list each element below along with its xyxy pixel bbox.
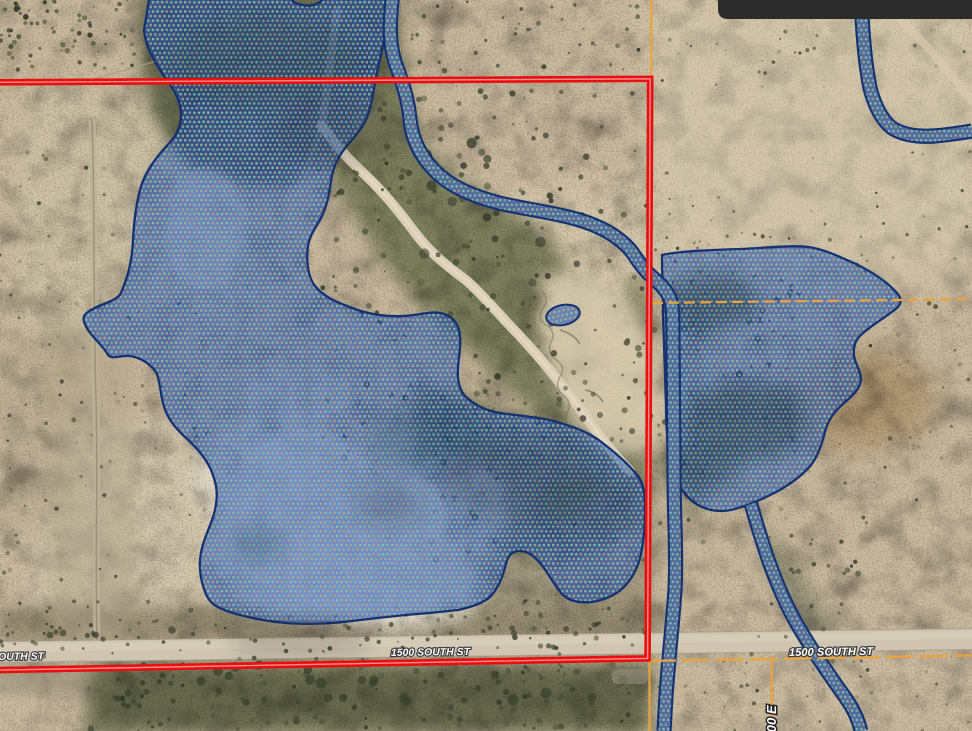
svg-text:1500 E: 1500 E: [764, 705, 779, 731]
svg-text:1500 SOUTH ST: 1500 SOUTH ST: [789, 646, 875, 659]
svg-text:1500 SOUTH ST: 1500 SOUTH ST: [391, 647, 472, 659]
svg-text:1500 SOUTH ST: 1500 SOUTH ST: [0, 651, 46, 663]
